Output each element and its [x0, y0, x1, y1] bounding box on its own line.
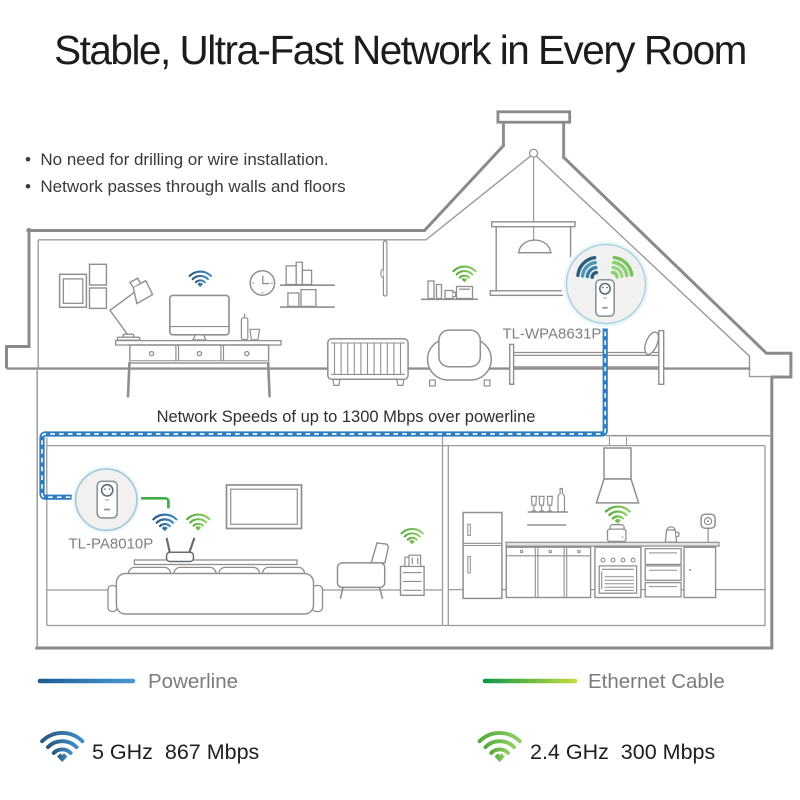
svg-text:5 GHz 867 Mbps: 5 GHz 867 Mbps [92, 740, 259, 764]
svg-text:• Network passes through wall: • Network passes through walls and floor… [25, 177, 346, 196]
svg-text:TL-PA8010P: TL-PA8010P [69, 536, 154, 553]
svg-text:TL-WPA8631P: TL-WPA8631P [503, 326, 602, 343]
svg-text:Network Speeds of up to 1300 M: Network Speeds of up to 1300 Mbps over p… [157, 408, 536, 426]
svg-text:Powerline: Powerline [148, 670, 238, 693]
svg-text:2.4 GHz 300 Mbps: 2.4 GHz 300 Mbps [530, 740, 715, 764]
svg-text:Stable, Ultra-Fast Network in: Stable, Ultra-Fast Network in Every Room [54, 27, 746, 73]
svg-text:Ethernet Cable: Ethernet Cable [588, 670, 725, 693]
svg-text:• No need for drilling or wir: • No need for drilling or wire installat… [25, 150, 329, 169]
